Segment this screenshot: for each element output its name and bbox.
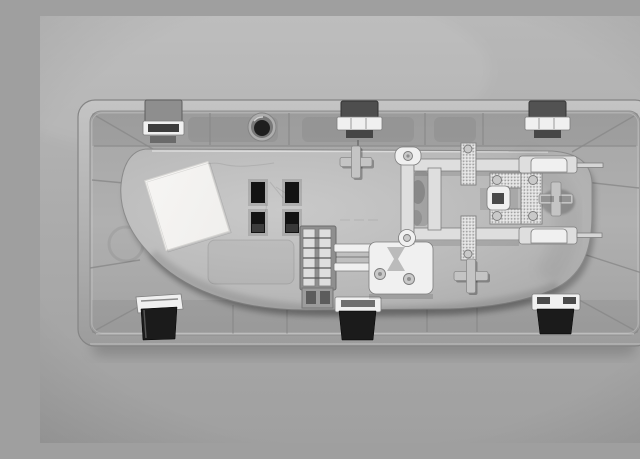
dome-light-rear-photo: Rear side of a gray plastic automotive i… (40, 16, 640, 443)
vignette-overlay (40, 16, 640, 443)
photo-stage: Rear side of a gray plastic automotive i… (40, 16, 640, 443)
